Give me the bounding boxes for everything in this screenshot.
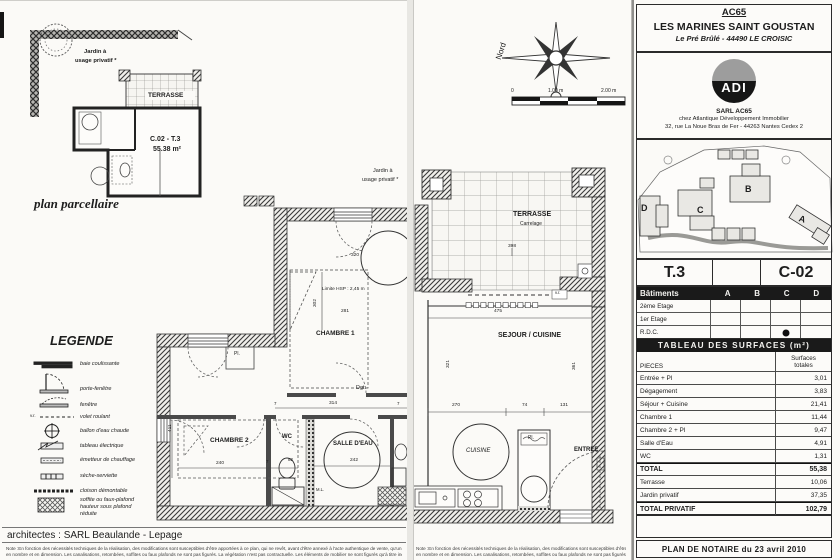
dim-302: 302 — [313, 299, 319, 307]
dim-240: 240 — [216, 461, 224, 467]
dim-131: 131 — [560, 403, 568, 409]
surface-row: Entrée + Pl3,01 — [637, 372, 831, 385]
agency-line3: 32, rue La Noue Bras de Fer - 44263 Nant… — [665, 124, 803, 131]
page-middle — [413, 0, 632, 560]
project-code: AC65 — [722, 8, 746, 19]
surfaces-title: TABLEAU DES SURFACES (m²) — [658, 341, 810, 350]
batiments-col-b: B — [742, 289, 772, 298]
surface-value: 3,83 — [775, 385, 831, 397]
surface-value: 37,35 — [775, 489, 831, 501]
floor-row-label: 1er Etage — [637, 313, 711, 325]
fine-print-line2: en nombre et en dimension. Les canalisat… — [416, 552, 626, 558]
surfaces-table: TABLEAU DES SURFACES (m²) PIECES Surface… — [636, 338, 832, 515]
floor-cell — [711, 300, 741, 312]
dim-475: 475 — [494, 309, 502, 315]
unit-row: T.3 C-02 — [636, 259, 832, 286]
surface-value: 1,31 — [775, 450, 831, 462]
surface-value: 21,41 — [775, 398, 831, 410]
legend-item-soffite: soffite ou faux-plafond — [80, 497, 134, 503]
room-sejour: SEJOUR / CUISINE — [498, 332, 561, 340]
surface-row: Jardin privatif37,35 — [637, 489, 831, 502]
site-plan-frame — [636, 139, 832, 259]
parcel-terrace-label: TERRASSE — [148, 92, 183, 99]
floor-cell — [771, 300, 801, 312]
floor-cell — [801, 313, 831, 325]
terrasse-carrelage: Carrelage — [520, 222, 542, 228]
surface-value: 9,47 — [775, 424, 831, 436]
dim-hsp: Limite HSP : 2,45 m — [322, 287, 365, 293]
batiments-col-c: C — [772, 289, 802, 298]
surface-value: 4,91 — [775, 437, 831, 449]
agency-block: ADI SARL AC65 chez Atlantique Développem… — [636, 52, 832, 139]
dim-398: 398 — [508, 244, 516, 250]
legend-item-soffite-3: réduite — [80, 511, 97, 517]
parcel-caption: plan parcellaire — [34, 197, 119, 212]
agency-line2: chez Atlantique Développement Immobilier — [679, 116, 789, 123]
project-name: LES MARINES SAINT GOUSTAN — [654, 21, 815, 33]
floor-row-2eme: 2ème Etage — [637, 300, 831, 313]
notaire-block: PLAN DE NOTAIRE du 23 avril 2010 — [636, 540, 832, 558]
room-dgt: Dgt. — [356, 385, 366, 391]
vr-label: v.r. — [555, 291, 560, 296]
batiments-col-d: D — [801, 289, 831, 298]
surface-label: TOTAL — [637, 466, 775, 473]
room-cuisine: CUISINE — [466, 448, 490, 455]
dim-281: 281 — [341, 309, 349, 315]
legend-item-cloison: cloison démontable — [80, 488, 127, 494]
surface-label: Chambre 2 + Pl — [637, 427, 775, 434]
dim-314: 314 — [329, 401, 337, 407]
adi-logo-text: ADI — [712, 80, 756, 95]
surfaces-col-totals-2: totales — [794, 362, 813, 369]
room-terrasse: TERRASSE — [513, 211, 551, 219]
batiments-header: Bâtiments A B C D — [637, 287, 831, 300]
surface-row-total: TOTAL55,38 — [637, 463, 831, 476]
surface-label: Séjour + Cuisine — [637, 401, 775, 408]
surface-label: Dégagement — [637, 388, 775, 395]
parcel-unit-area: 55.38 m² — [153, 146, 181, 154]
unit-type: T.3 — [637, 260, 713, 285]
floor-cell — [711, 313, 741, 325]
surface-value: 55,38 — [775, 464, 831, 475]
dim-7b: 7 — [397, 401, 400, 406]
legend-item-fenetre: fenêtre — [80, 402, 97, 408]
batiments-title: Bâtiments — [637, 289, 713, 298]
dim-7c: 7 — [266, 459, 269, 464]
site-label-d: D — [641, 203, 648, 213]
parcel-garden-label-1: Jardin à — [84, 49, 106, 56]
page-left — [0, 0, 407, 560]
agency-name: SARL AC65 — [716, 108, 752, 115]
floor-row-label: 2ème Etage — [637, 300, 711, 312]
batiments-table: Bâtiments A B C D 2ème Etage 1er Etage R… — [636, 286, 832, 339]
dim-242: 242 — [350, 458, 358, 464]
legend-item-ballon: ballon d'eau chaude — [80, 428, 129, 434]
scanned-plan-sheet: LEGENDE baie coulissante porte-fenêtre f… — [0, 0, 840, 560]
surface-label: Salle d'Eau — [637, 440, 775, 447]
dim-7a: 7 — [274, 401, 277, 406]
surface-value: 10,06 — [775, 476, 831, 488]
surface-label: Terrasse — [637, 479, 775, 486]
surface-label: WC — [637, 453, 775, 460]
surfaces-header-row: PIECES Surfaces totales — [637, 352, 831, 372]
surface-row: Chambre 2 + Pl9,47 — [637, 424, 831, 437]
room-wc: WC — [282, 434, 292, 441]
dim-270: 270 — [452, 403, 460, 409]
surface-row-total-privatif: TOTAL PRIVATIF102,79 — [637, 502, 831, 515]
scale-tick-1: 1.00 m — [548, 89, 563, 95]
room-salle-eau: SALLE D'EAU — [333, 441, 373, 448]
floor-cell — [801, 300, 831, 312]
site-label-c: C — [697, 205, 704, 215]
dim-361: 361 — [572, 362, 578, 370]
site-label-b: B — [745, 184, 752, 194]
plan-garden-label-1: Jardin à — [373, 168, 393, 174]
surface-label: TOTAL PRIVATIF — [637, 506, 775, 513]
unit-number: C-02 — [761, 260, 831, 285]
dim-82: 82 — [288, 457, 293, 462]
surface-row: WC1,31 — [637, 450, 831, 463]
floor-cell — [741, 313, 771, 325]
surface-value: 102,79 — [775, 503, 831, 515]
surface-label: Jardin privatif — [637, 492, 775, 499]
room-chambre2: CHAMBRE 2 — [210, 437, 249, 444]
floor-row-1er: 1er Etage — [637, 313, 831, 326]
dim-411: 411 — [168, 424, 174, 432]
room-chambre1: CHAMBRE 1 — [316, 330, 355, 337]
surface-row: Dégagement3,83 — [637, 385, 831, 398]
scale-tick-0: 0 — [511, 89, 514, 95]
surface-row: Séjour + Cuisine21,41 — [637, 398, 831, 411]
surfaces-title-bar: TABLEAU DES SURFACES (m²) — [637, 339, 831, 352]
fine-print-middle: Note :En fonction des nécessités techniq… — [416, 546, 626, 559]
room-entree: ENTREE — [574, 447, 598, 454]
scale-tick-2: 2.00 m — [601, 89, 616, 95]
unit-empty-cell — [713, 260, 761, 285]
parcel-unit-label: C.02 - T.3 — [150, 136, 180, 144]
surface-label: Entrée + Pl — [637, 375, 775, 382]
project-address: Le Pré Brûlé - 44490 LE CROISIC — [676, 35, 793, 44]
legend-title: LEGENDE — [50, 334, 113, 349]
empty-block — [636, 515, 832, 538]
notaire-label: PLAN DE NOTAIRE du 23 avril 2010 — [662, 545, 806, 554]
architects-line: architectes : SARL Beaulande - Lepage — [2, 527, 406, 543]
selected-floor-marker — [782, 329, 789, 336]
architects-text: architectes : SARL Beaulande - Lepage — [7, 530, 182, 541]
room-pl-mid: Pl. — [528, 436, 534, 442]
legend-item-emetteur: émetteur de chauffage — [80, 457, 135, 463]
legend-item-seche: sèche-serviette — [80, 473, 117, 479]
surface-row: Salle d'Eau4,91 — [637, 437, 831, 450]
fine-print-line2: en nombre et en dimension. Les canalisat… — [6, 552, 402, 558]
batiments-col-a: A — [713, 289, 743, 298]
legend-vr-symbol: v.r. — [30, 413, 36, 418]
floor-cell — [771, 313, 801, 325]
plan-garden-label-2: usage privatif * — [362, 177, 398, 183]
dim-321: 321 — [446, 360, 452, 368]
surface-value: 3,01 — [775, 372, 831, 384]
legend-item-soffite-2: hauteur sous plafond — [80, 504, 131, 510]
surface-row: Chambre 111,44 — [637, 411, 831, 424]
surface-row: Terrasse10,06 — [637, 476, 831, 489]
legend-item-porte-fenetre: porte-fenêtre — [80, 386, 112, 392]
parcel-garden-label-2: usage privatif * — [75, 58, 117, 65]
legend-item-volet: volet roulant — [80, 414, 110, 420]
dim-74: 74 — [522, 403, 527, 409]
legend-item-baie: baie coulissante — [80, 361, 119, 367]
fine-print-left: Note :En fonction des nécessités techniq… — [6, 546, 402, 559]
title-block-header: AC65 LES MARINES SAINT GOUSTAN Le Pré Br… — [636, 4, 832, 52]
surfaces-col-totals: Surfaces totales — [775, 352, 831, 371]
surfaces-col-pieces: PIECES — [637, 352, 775, 371]
surfaces-col-totals-1: Surfaces — [791, 355, 816, 362]
surface-value: 11,44 — [775, 411, 831, 423]
surface-label: Chambre 1 — [637, 414, 775, 421]
room-pl-left: Pl. — [234, 352, 240, 358]
legend-item-tableau: tableau électrique — [80, 443, 123, 449]
label-ml: M.L. — [316, 488, 324, 493]
adi-logo: ADI — [712, 59, 756, 103]
dim-320: 320 — [351, 253, 359, 259]
floor-cell — [741, 300, 771, 312]
